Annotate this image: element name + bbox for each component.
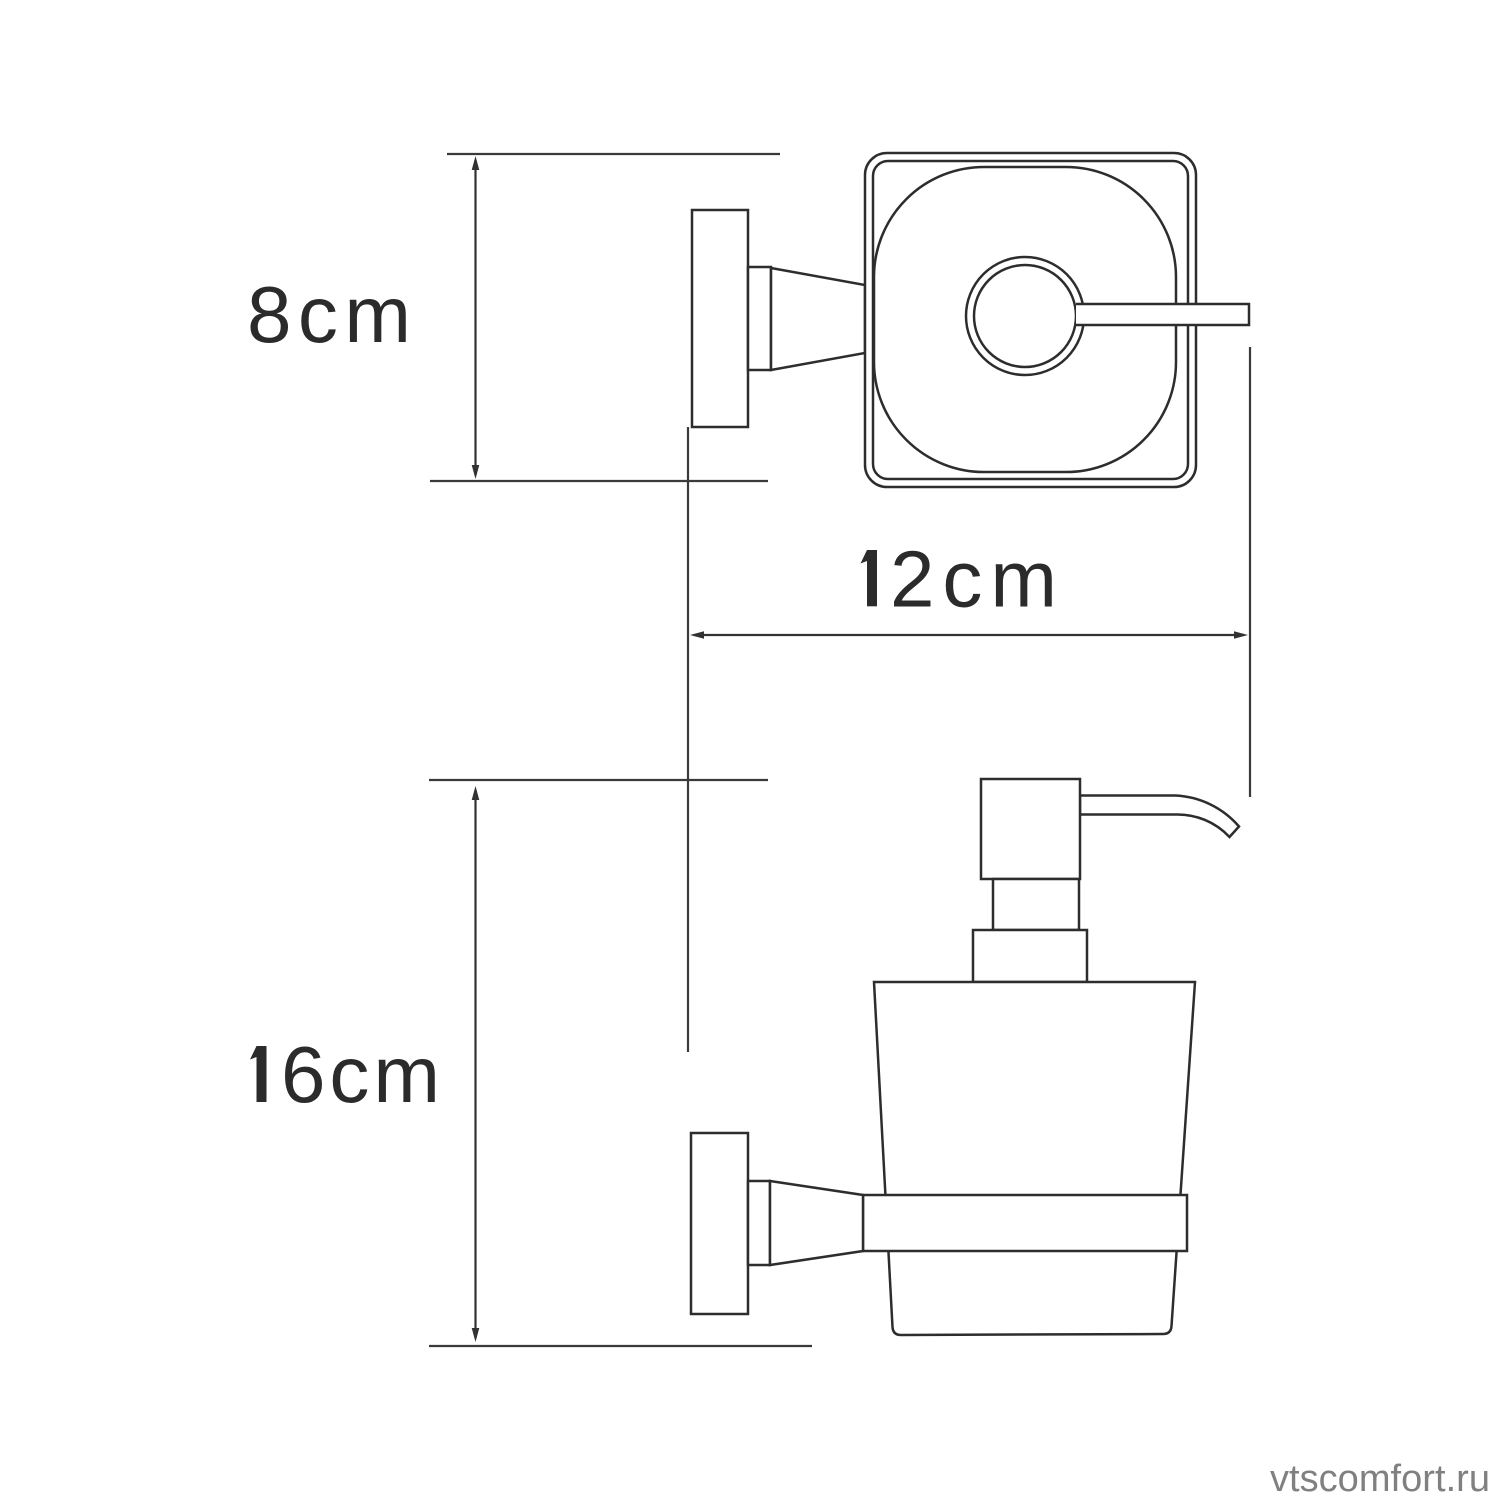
svg-text:vtscomfort.ru: vtscomfort.ru — [1270, 1458, 1490, 1500]
svg-text:6cm: 6cm — [281, 1030, 440, 1119]
svg-text:8cm: 8cm — [247, 270, 411, 359]
svg-text:2cm: 2cm — [890, 534, 1057, 623]
